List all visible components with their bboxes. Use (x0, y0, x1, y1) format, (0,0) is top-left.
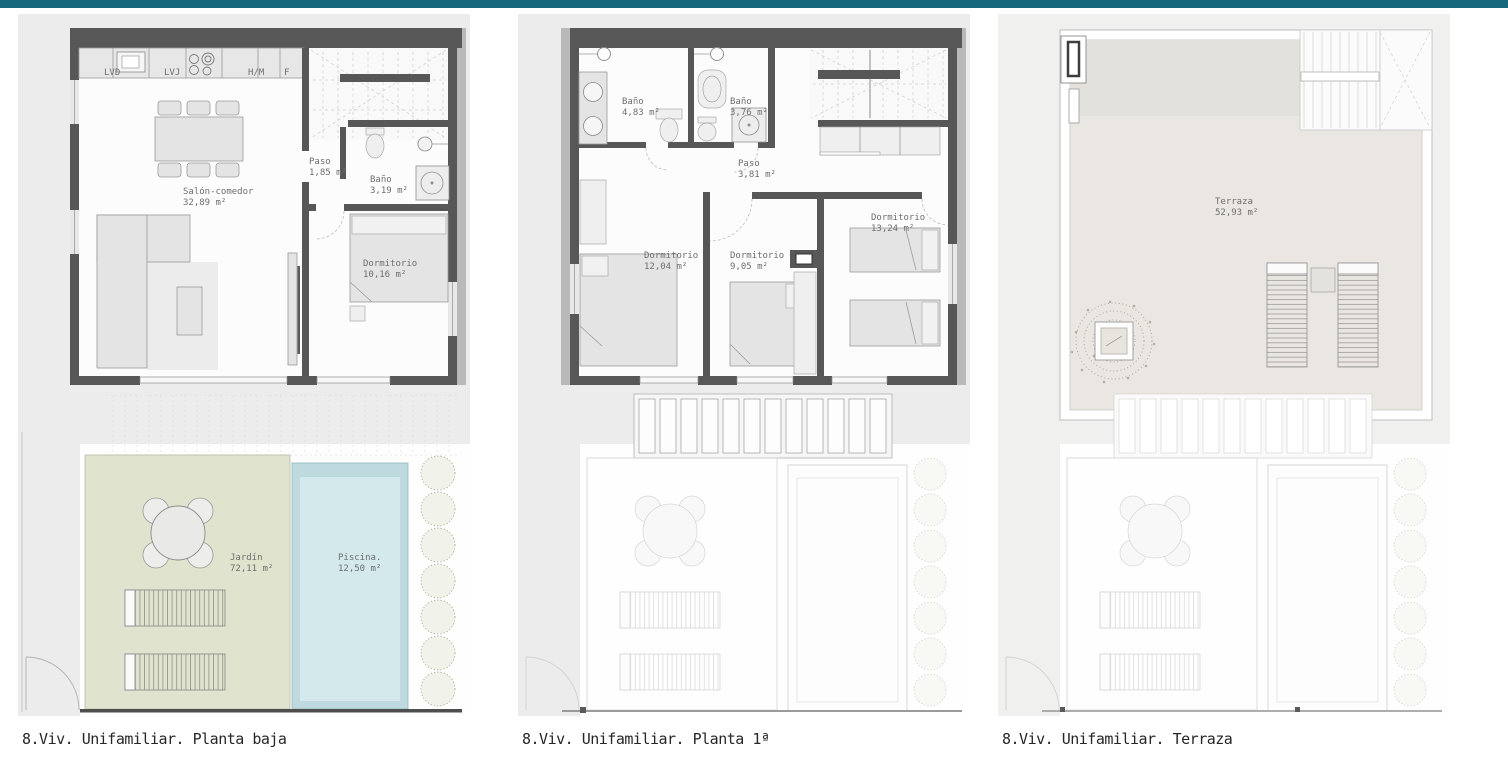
room-label-bano2-area: 3,76 m² (730, 108, 768, 118)
room-label-bano-area: 3,19 m² (370, 186, 408, 196)
tv-unit-icon (288, 253, 300, 365)
room-label-dorm2-name: Dormitorio (730, 251, 784, 261)
bed-icon (350, 214, 448, 302)
sun-lounger-icon (1267, 263, 1307, 367)
stairs-icon (809, 48, 957, 127)
kitchen-label-lvj: LVJ (164, 68, 180, 78)
wardrobe-icon (794, 272, 816, 374)
garden-area (85, 455, 290, 709)
vanity-icon (579, 72, 607, 144)
nightstand-icon (350, 306, 365, 321)
room-label-piscina-area: 12,50 m² (338, 564, 381, 574)
sliding-door-icon (640, 377, 887, 383)
room-labels: Terraza 52,93 m² (1215, 197, 1258, 218)
room-label-salon-area: 32,89 m² (183, 198, 226, 208)
sun-lounger-icon (125, 654, 225, 690)
bed-icon (850, 300, 940, 346)
coffee-table-icon (177, 287, 202, 335)
dining-table-icon (155, 101, 243, 177)
bed-icon (850, 228, 940, 272)
sun-lounger-icon (125, 590, 225, 626)
room-label-dorm1-area: 12,04 m² (644, 262, 687, 272)
shower-icon (416, 166, 449, 200)
shaft-icon (790, 250, 824, 268)
room-label-dorm1-name: Dormitorio (644, 251, 698, 261)
kitchen-label-f: F (284, 68, 289, 78)
plan-planta-1-drawing: Baño 4,83 m² Baño 3,76 m² Paso 3,81 m² D… (518, 14, 988, 726)
sliding-door-icon (140, 377, 390, 383)
sink-icon (117, 52, 145, 72)
wardrobe-icon (580, 180, 606, 244)
caption-planta-1: 8.Viv. Unifamiliar. Planta 1ª (522, 730, 769, 748)
room-label-jardin-area: 72,11 m² (230, 564, 273, 574)
room-label-salon-name: Salón-comedor (183, 186, 254, 197)
plan-terraza: Terraza 52,93 m² 8.Viv. Unifamiliar. Ter… (998, 14, 1468, 758)
room-label-paso-area: 1,85 m² (309, 168, 347, 178)
wardrobe-icon (820, 127, 940, 155)
kitchen-label-lvd: LVD (104, 68, 120, 78)
room-label-paso-name: Paso (309, 157, 331, 167)
room-label-dormitorio-area: 10,16 m² (363, 270, 406, 280)
room-label-dorm2-area: 9,05 m² (730, 262, 768, 272)
sun-lounger-icon (1338, 263, 1378, 367)
stairs-icon (1300, 30, 1432, 130)
kitchen-label-hm: H/M (248, 68, 265, 78)
caption-terraza: 8.Viv. Unifamiliar. Terraza (1002, 730, 1232, 748)
plan-planta-baja: LVD LVJ H/M F (18, 14, 488, 758)
room-label-paso-name: Paso (738, 159, 760, 169)
header-bar (0, 0, 1508, 8)
pergola-slats (634, 394, 892, 458)
side-table-icon (1311, 268, 1335, 292)
plan-planta-baja-drawing: LVD LVJ H/M F (18, 14, 488, 726)
plan-planta-1: Baño 4,83 m² Baño 3,76 m² Paso 3,81 m² D… (518, 14, 988, 758)
pool-area (292, 463, 408, 709)
room-label-bano2-name: Baño (730, 97, 752, 107)
room-label-paso-area: 3,81 m² (738, 170, 776, 180)
pool-ghost (1268, 465, 1387, 711)
pool-ghost (788, 465, 907, 711)
room-label-terraza-area: 52,93 m² (1215, 208, 1258, 218)
room-label-bano1-area: 4,83 m² (622, 108, 660, 118)
caption-planta-baja: 8.Viv. Unifamiliar. Planta baja (22, 730, 286, 748)
garden-table-ghost-icon (635, 496, 705, 566)
room-label-dorm3-name: Dormitorio (871, 213, 925, 223)
ghost-pergola-slats (1114, 394, 1372, 458)
room-label-terraza-name: Terraza (1215, 197, 1253, 207)
room-label-dorm3-area: 13,24 m² (871, 224, 914, 234)
room-label-bano-name: Baño (370, 175, 392, 185)
kitchen-counter: LVD LVJ H/M F (79, 48, 304, 78)
room-label-dormitorio-name: Dormitorio (363, 259, 417, 269)
room-label-piscina-name: Piscina. (338, 553, 381, 563)
room-label-jardin-name: Jardín (230, 553, 263, 563)
toilet-icon (366, 128, 384, 158)
room-label-bano1-name: Baño (622, 97, 644, 107)
garden-table-icon (143, 498, 213, 568)
garden-table-ghost-icon (1120, 496, 1190, 566)
plan-terraza-drawing: Terraza 52,93 m² (998, 14, 1468, 726)
bathtub-icon (698, 70, 726, 108)
page: LVD LVJ H/M F (0, 0, 1508, 758)
